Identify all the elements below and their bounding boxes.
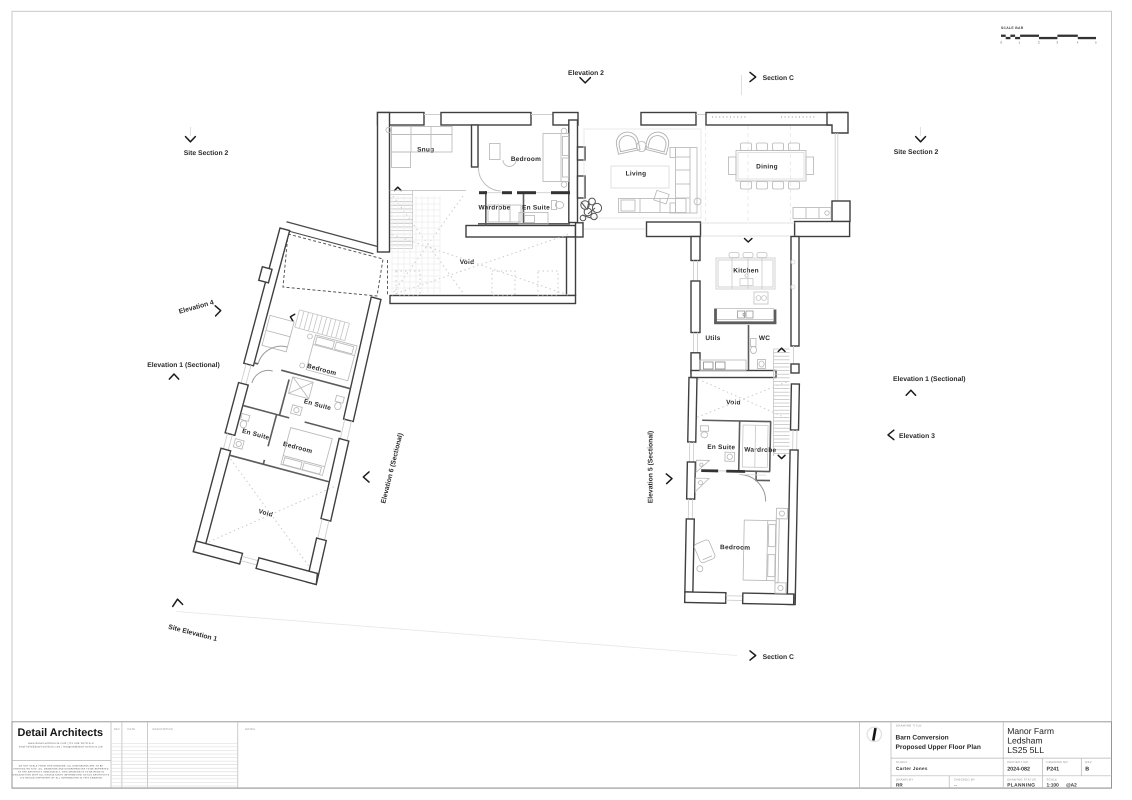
svg-text:Wardrobe: Wardrobe <box>744 447 776 455</box>
svg-text:DRAWING STATUS: DRAWING STATUS <box>1007 778 1036 782</box>
svg-text:DO NOT SCALE FROM THIS DRAWING: DO NOT SCALE FROM THIS DRAWING. ALL DIME… <box>19 765 104 768</box>
svg-text:Site Section 2: Site Section 2 <box>894 149 939 156</box>
svg-text:NOTES: NOTES <box>245 728 255 731</box>
svg-text:Living: Living <box>626 171 647 178</box>
svg-text:Void: Void <box>460 259 475 266</box>
svg-text:Elevation 1 (Sectional): Elevation 1 (Sectional) <box>893 376 966 383</box>
svg-text:LS25 5LL: LS25 5LL <box>1007 745 1044 755</box>
svg-text:Snug: Snug <box>417 147 434 154</box>
svg-text:WC: WC <box>759 335 770 342</box>
svg-text:SCALE: SCALE <box>1047 778 1058 782</box>
svg-text:Manor Farm: Manor Farm <box>1007 726 1054 736</box>
svg-text:Section C: Section C <box>763 654 794 661</box>
svg-text:B: B <box>1085 767 1089 773</box>
svg-text:En Suite: En Suite <box>522 205 550 212</box>
svg-text:DRAWING TITLE: DRAWING TITLE <box>896 724 922 728</box>
svg-text:SCALE BAR: SCALE BAR <box>1001 26 1024 30</box>
svg-text:Kitchen: Kitchen <box>733 268 759 275</box>
svg-text:REV: REV <box>1085 760 1092 764</box>
svg-text:email hello@detail-architects.: email hello@detail-architects.com | inst… <box>19 746 103 749</box>
svg-text:Detail Architects: Detail Architects <box>18 727 104 739</box>
svg-text:TO THE ARCHITECT IMMEDIATELY.: TO THE ARCHITECT IMMEDIATELY. THIS DRAWI… <box>18 771 105 774</box>
svg-text:Bedroom: Bedroom <box>720 544 750 552</box>
svg-text:Dining: Dining <box>756 164 778 171</box>
svg-text:@A2: @A2 <box>1066 783 1077 789</box>
svg-text:Section C: Section C <box>763 75 794 82</box>
svg-text:Site Section 2: Site Section 2 <box>184 150 229 157</box>
svg-text:Wardrobe: Wardrobe <box>478 205 510 212</box>
svg-text:DRAWN BY: DRAWN BY <box>896 778 913 782</box>
svg-text:CHECKED ON SITE. ALL DRAWINGS: CHECKED ON SITE. ALL DRAWINGS AND DISCRE… <box>13 768 109 771</box>
svg-text:Elevation 2: Elevation 2 <box>568 70 604 77</box>
svg-text:Barn Conversion: Barn Conversion <box>896 735 949 742</box>
svg-text:Elevation 3: Elevation 3 <box>899 433 935 440</box>
svg-text:Utils: Utils <box>705 335 720 342</box>
svg-text:CLIENT: CLIENT <box>896 760 908 764</box>
svg-text:1:100: 1:100 <box>1047 783 1060 789</box>
svg-text:LTD RETAIN COPYRIGHT OF ALL IN: LTD RETAIN COPYRIGHT OF ALL INFORMATION … <box>20 777 102 780</box>
svg-text:DRAWING NO: DRAWING NO <box>1047 760 1069 764</box>
svg-text:Ledsham: Ledsham <box>1007 735 1042 745</box>
svg-text:PROJECT NO: PROJECT NO <box>1007 760 1028 764</box>
svg-text:Elevation 1 (Sectional): Elevation 1 (Sectional) <box>147 362 220 369</box>
svg-text:P241: P241 <box>1047 767 1060 773</box>
svg-text:Proposed Upper Floor Plan: Proposed Upper Floor Plan <box>896 744 981 751</box>
svg-text:PLANNING: PLANNING <box>1007 783 1035 789</box>
svg-text:DESCRIPTION: DESCRIPTION <box>153 728 173 731</box>
svg-text:RR: RR <box>896 782 903 787</box>
svg-text:www.detail-architects.com | 01: www.detail-architects.com | 01 234 5678 … <box>28 742 94 745</box>
svg-text:CONJUNCTION WITH ALL CONSULTAN: CONJUNCTION WITH ALL CONSULTANTS INFORMA… <box>13 774 110 777</box>
svg-text:2024-082: 2024-082 <box>1007 767 1030 773</box>
svg-text:REV: REV <box>114 728 120 731</box>
svg-text:DATE: DATE <box>128 728 136 731</box>
svg-text:CHECKED BY: CHECKED BY <box>954 778 975 782</box>
svg-text:--: -- <box>954 782 958 787</box>
svg-text:En Suite: En Suite <box>707 444 735 452</box>
svg-text:Elevation 5 (Sectional): Elevation 5 (Sectional) <box>648 431 655 504</box>
svg-text:Void: Void <box>726 399 741 406</box>
svg-text:Carter Jones: Carter Jones <box>896 766 928 771</box>
